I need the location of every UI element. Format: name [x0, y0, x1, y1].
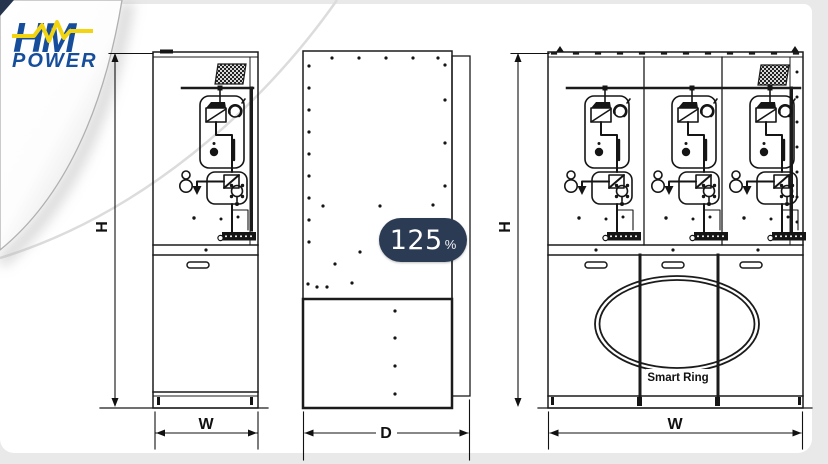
door-handle [662, 262, 684, 268]
logo-word-power: POWER [12, 50, 98, 72]
viewer-stage: HM POWER [0, 0, 828, 464]
page-curl: HM POWER [0, 0, 337, 262]
lifting-lug [160, 50, 173, 54]
smart-ring-ellipse [595, 276, 759, 372]
dim-label-d-side: D [380, 425, 392, 442]
door-handle [585, 262, 607, 268]
door-handle [740, 262, 762, 268]
door-handle [187, 262, 209, 268]
front-view-single [100, 50, 268, 409]
nameplate [215, 64, 246, 84]
lifting-lug [791, 46, 799, 52]
nameplate [758, 65, 789, 85]
dim-label-w-triple: W [667, 416, 683, 433]
front-view-triple: Smart Ring [538, 46, 812, 408]
dim-label-h-triple: H [497, 221, 514, 233]
percent-sign: % [445, 237, 457, 252]
zoom-value: 125 [390, 225, 443, 256]
dim-label-w-single: W [198, 416, 214, 433]
smart-ring-label: Smart Ring [647, 372, 708, 384]
lifting-lug [556, 46, 564, 52]
cabinet-outline [153, 52, 258, 408]
zoom-level-badge[interactable]: 125 % [379, 218, 467, 262]
cable-box [303, 299, 452, 408]
dim-label-h-single: H [94, 221, 111, 233]
